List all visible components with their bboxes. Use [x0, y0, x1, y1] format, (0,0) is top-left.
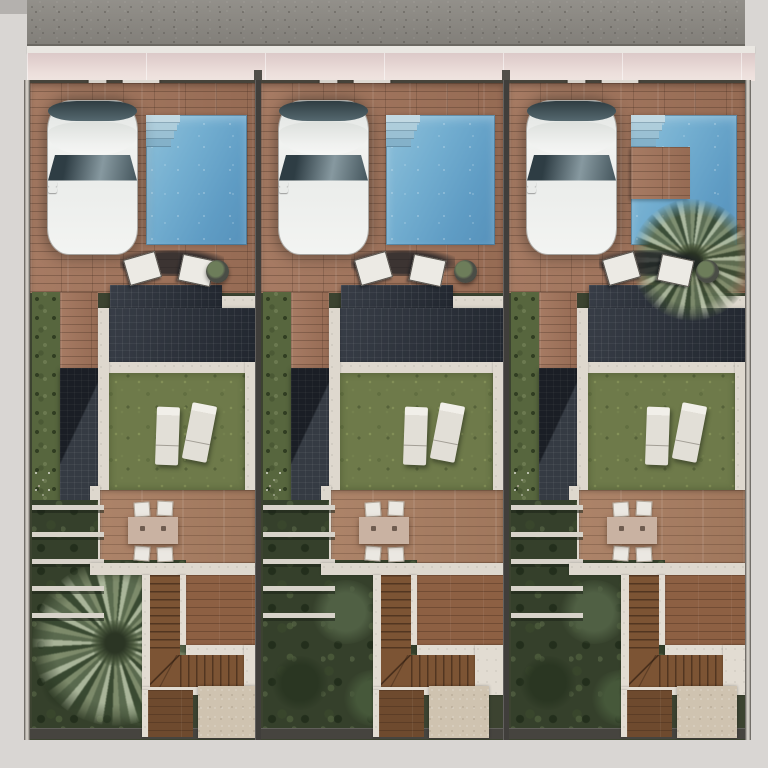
sun-lounger	[403, 407, 428, 466]
gravel-pad	[429, 686, 489, 738]
swimming-pool	[386, 115, 495, 245]
car-hood	[279, 121, 368, 155]
wall-segment	[90, 563, 255, 575]
pool-step	[631, 123, 662, 131]
round-planter	[454, 260, 477, 283]
staircase-upper-flight	[629, 575, 659, 655]
lawn	[109, 373, 245, 490]
roof-main	[339, 308, 503, 362]
sun-lounger	[672, 402, 707, 463]
staircase-lower-flight	[180, 655, 244, 687]
villa-2	[261, 80, 503, 740]
wall-segment	[142, 575, 150, 690]
parked-car	[526, 100, 617, 255]
car-windshield	[48, 155, 137, 181]
party-wall	[503, 80, 509, 740]
dining-chair	[133, 501, 150, 517]
parked-car	[47, 100, 138, 255]
roof-main	[108, 308, 255, 362]
swimming-pool	[631, 115, 737, 245]
parked-car	[278, 100, 369, 255]
lower-deck	[379, 690, 424, 737]
side-path	[539, 292, 577, 368]
dining-chair	[157, 547, 174, 563]
pool-step	[631, 115, 665, 123]
boundary-wall-left	[24, 80, 30, 740]
lower-terrace	[186, 575, 255, 645]
lower-terrace	[665, 575, 745, 645]
lawn	[588, 373, 735, 490]
wall-segment	[339, 362, 503, 373]
pool-step	[146, 115, 180, 123]
round-planter	[696, 260, 719, 283]
sun-lounger	[430, 402, 465, 463]
lower-deck	[627, 690, 672, 737]
side-path	[60, 292, 98, 368]
sun-lounger	[645, 407, 670, 466]
site-plan-render	[0, 0, 768, 768]
car-mirror-right	[279, 187, 288, 193]
wall-segment	[245, 362, 255, 490]
car-hood	[48, 121, 137, 155]
dining-chair	[133, 545, 150, 561]
party-wall	[255, 80, 261, 740]
dining-chair	[612, 501, 629, 517]
staircase-lower-flight	[659, 655, 723, 687]
car-mirror-left	[279, 181, 288, 187]
staircase-upper-flight	[150, 575, 180, 655]
pool-step	[146, 131, 174, 139]
entrance-canopy-roof	[539, 368, 577, 500]
dining-table	[128, 517, 178, 544]
wall-segment	[108, 362, 255, 373]
roof-section-upper	[341, 285, 453, 309]
lower-deck	[148, 690, 193, 737]
villa-1	[30, 80, 255, 740]
car-rear-window	[48, 101, 137, 121]
side-path	[291, 292, 329, 368]
wall-segment	[321, 563, 503, 575]
gravel-pad	[198, 686, 255, 738]
pool-step	[146, 139, 171, 147]
sun-lounger	[182, 402, 217, 463]
car-rear-window	[279, 101, 368, 121]
wall-segment	[493, 362, 503, 490]
shrub	[271, 656, 329, 710]
boundary-wall-right	[745, 80, 751, 740]
wall-segment	[98, 308, 109, 500]
dining-chair	[636, 547, 653, 563]
pool-step	[386, 139, 411, 147]
car-mirror-right	[527, 187, 536, 193]
wall-segment	[735, 362, 745, 490]
villa-3	[509, 80, 745, 740]
pool-planter-deck	[631, 147, 690, 199]
wall-segment	[569, 563, 745, 575]
dining-patio	[579, 490, 745, 563]
roof-section-upper	[110, 285, 222, 309]
dining-chair	[388, 501, 405, 517]
wall-segment	[577, 308, 588, 500]
roof-main	[587, 308, 745, 362]
dining-chair	[157, 501, 174, 517]
entrance-canopy-roof	[291, 368, 329, 500]
entrance-canopy-roof	[60, 368, 98, 500]
wall-segment	[621, 575, 629, 690]
car-hood	[527, 121, 616, 155]
wall-segment	[587, 362, 745, 373]
pool-step	[631, 131, 659, 139]
dining-table	[607, 517, 657, 544]
car-windshield	[527, 155, 616, 181]
lower-terrace	[417, 575, 503, 645]
dining-patio	[331, 490, 503, 563]
pool-step	[386, 131, 414, 139]
pool-step	[386, 123, 417, 131]
staircase-lower-flight	[411, 655, 475, 687]
car-mirror-right	[48, 187, 57, 193]
dining-chair	[388, 547, 405, 563]
pool-step	[631, 139, 656, 147]
round-planter	[206, 260, 229, 283]
units-layer	[0, 0, 768, 768]
car-windshield	[279, 155, 368, 181]
car-rear-window	[527, 101, 616, 121]
gravel-pad	[677, 686, 737, 738]
sun-lounger	[155, 407, 180, 466]
pool-step	[146, 123, 177, 131]
dining-chair	[612, 545, 629, 561]
staircase-fan-landing	[150, 655, 180, 687]
pool-step	[386, 115, 420, 123]
staircase-fan-landing	[381, 655, 411, 687]
dining-table	[359, 517, 409, 544]
lawn	[340, 373, 493, 490]
car-mirror-left	[527, 181, 536, 187]
wall-segment	[329, 308, 340, 500]
wall-segment	[373, 575, 381, 690]
dining-chair	[364, 501, 381, 517]
staircase-upper-flight	[381, 575, 411, 655]
shrub	[519, 656, 577, 710]
swimming-pool	[146, 115, 247, 245]
car-mirror-left	[48, 181, 57, 187]
staircase-fan-landing	[629, 655, 659, 687]
dining-chair	[364, 545, 381, 561]
dining-chair	[636, 501, 653, 517]
